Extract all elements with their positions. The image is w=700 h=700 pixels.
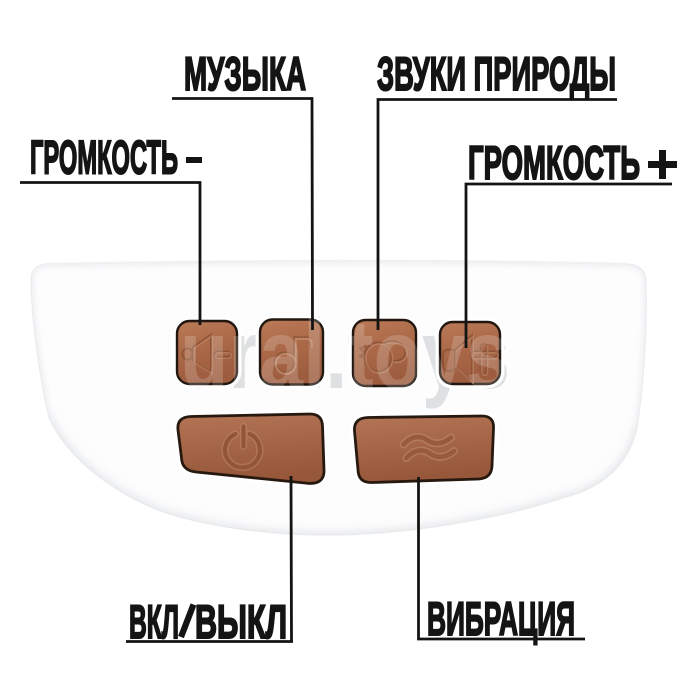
svg-text:ГРОМКОСТЬ: ГРОМКОСТЬ: [30, 131, 178, 184]
svg-text:ВИБРАЦИЯ: ВИБРАЦИЯ: [427, 592, 575, 645]
svg-text:МУЗЫКА: МУЗЫКА: [184, 47, 306, 100]
svg-text:ГРОМКОСТЬ: ГРОМКОСТЬ: [468, 136, 640, 189]
svg-text:ЗВУКИ ПРИРОДЫ: ЗВУКИ ПРИРОДЫ: [377, 47, 616, 100]
svg-text:ural.toys: ural.toys: [180, 299, 510, 409]
svg-text:ВКЛ: ВКЛ: [129, 595, 179, 648]
svg-text:ВЫКЛ: ВЫКЛ: [195, 595, 287, 648]
